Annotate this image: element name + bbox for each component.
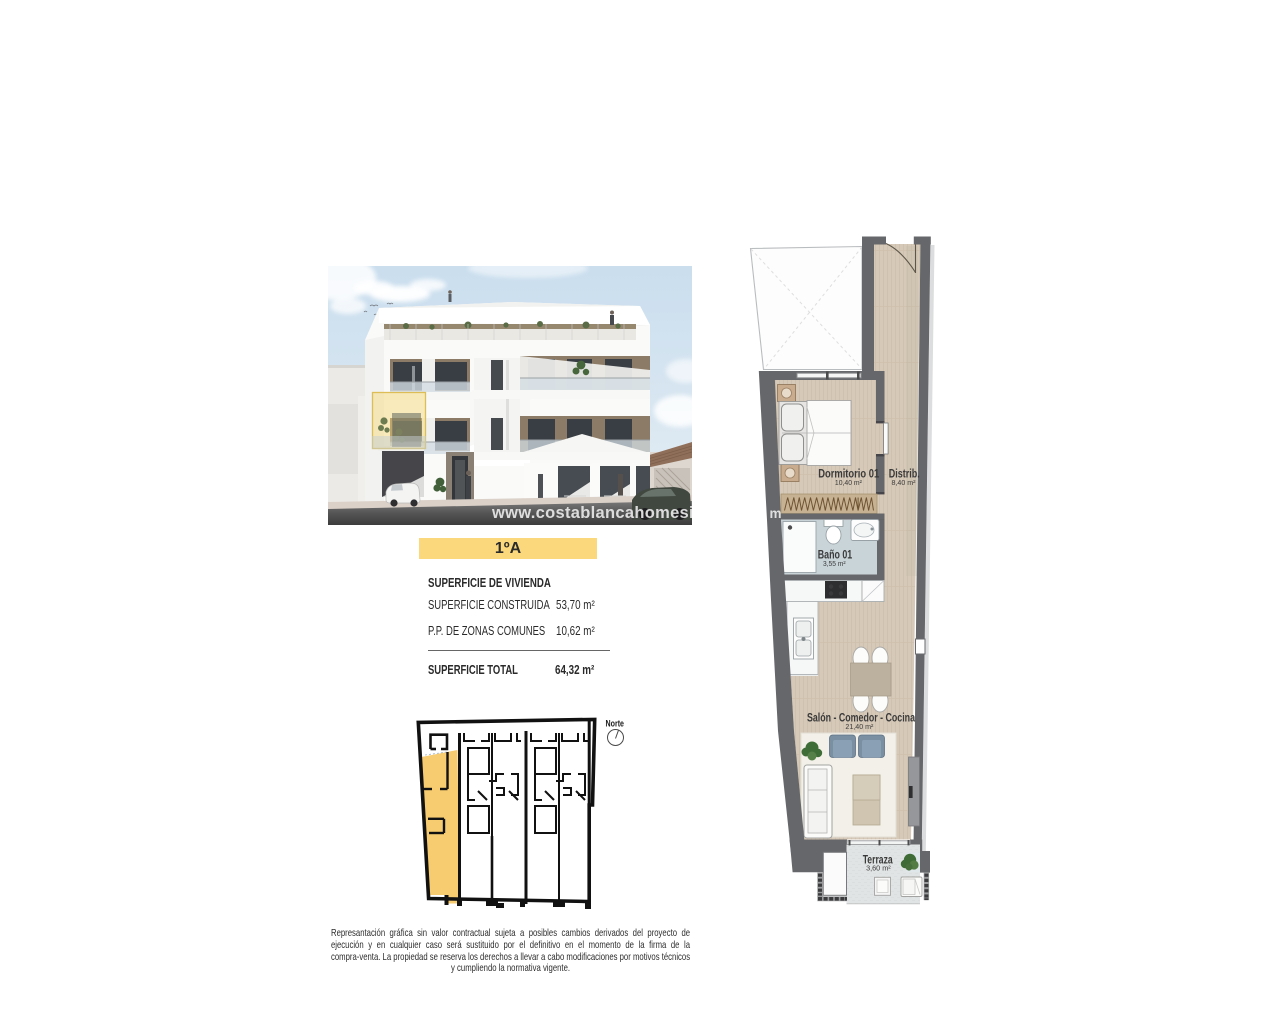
svg-text:Terraza: Terraza (863, 852, 893, 866)
svg-text:Salón - Comedor - Cocina: Salón - Comedor - Cocina (807, 710, 915, 724)
svg-text:Distrib.: Distrib. (889, 466, 920, 480)
svg-text:Norte: Norte (606, 719, 625, 729)
svg-text:Baño 01: Baño 01 (818, 548, 853, 562)
svg-text:m: m (770, 506, 782, 521)
svg-text:21,40 m²: 21,40 m² (845, 724, 874, 731)
svg-text:3,60 m²: 3,60 m² (866, 865, 891, 872)
svg-text:8,40 m²: 8,40 m² (892, 480, 917, 487)
svg-text:Dormitorio 01: Dormitorio 01 (818, 466, 879, 480)
svg-text:3,55 m²: 3,55 m² (823, 561, 846, 568)
svg-text:10,40 m²: 10,40 m² (835, 480, 863, 487)
